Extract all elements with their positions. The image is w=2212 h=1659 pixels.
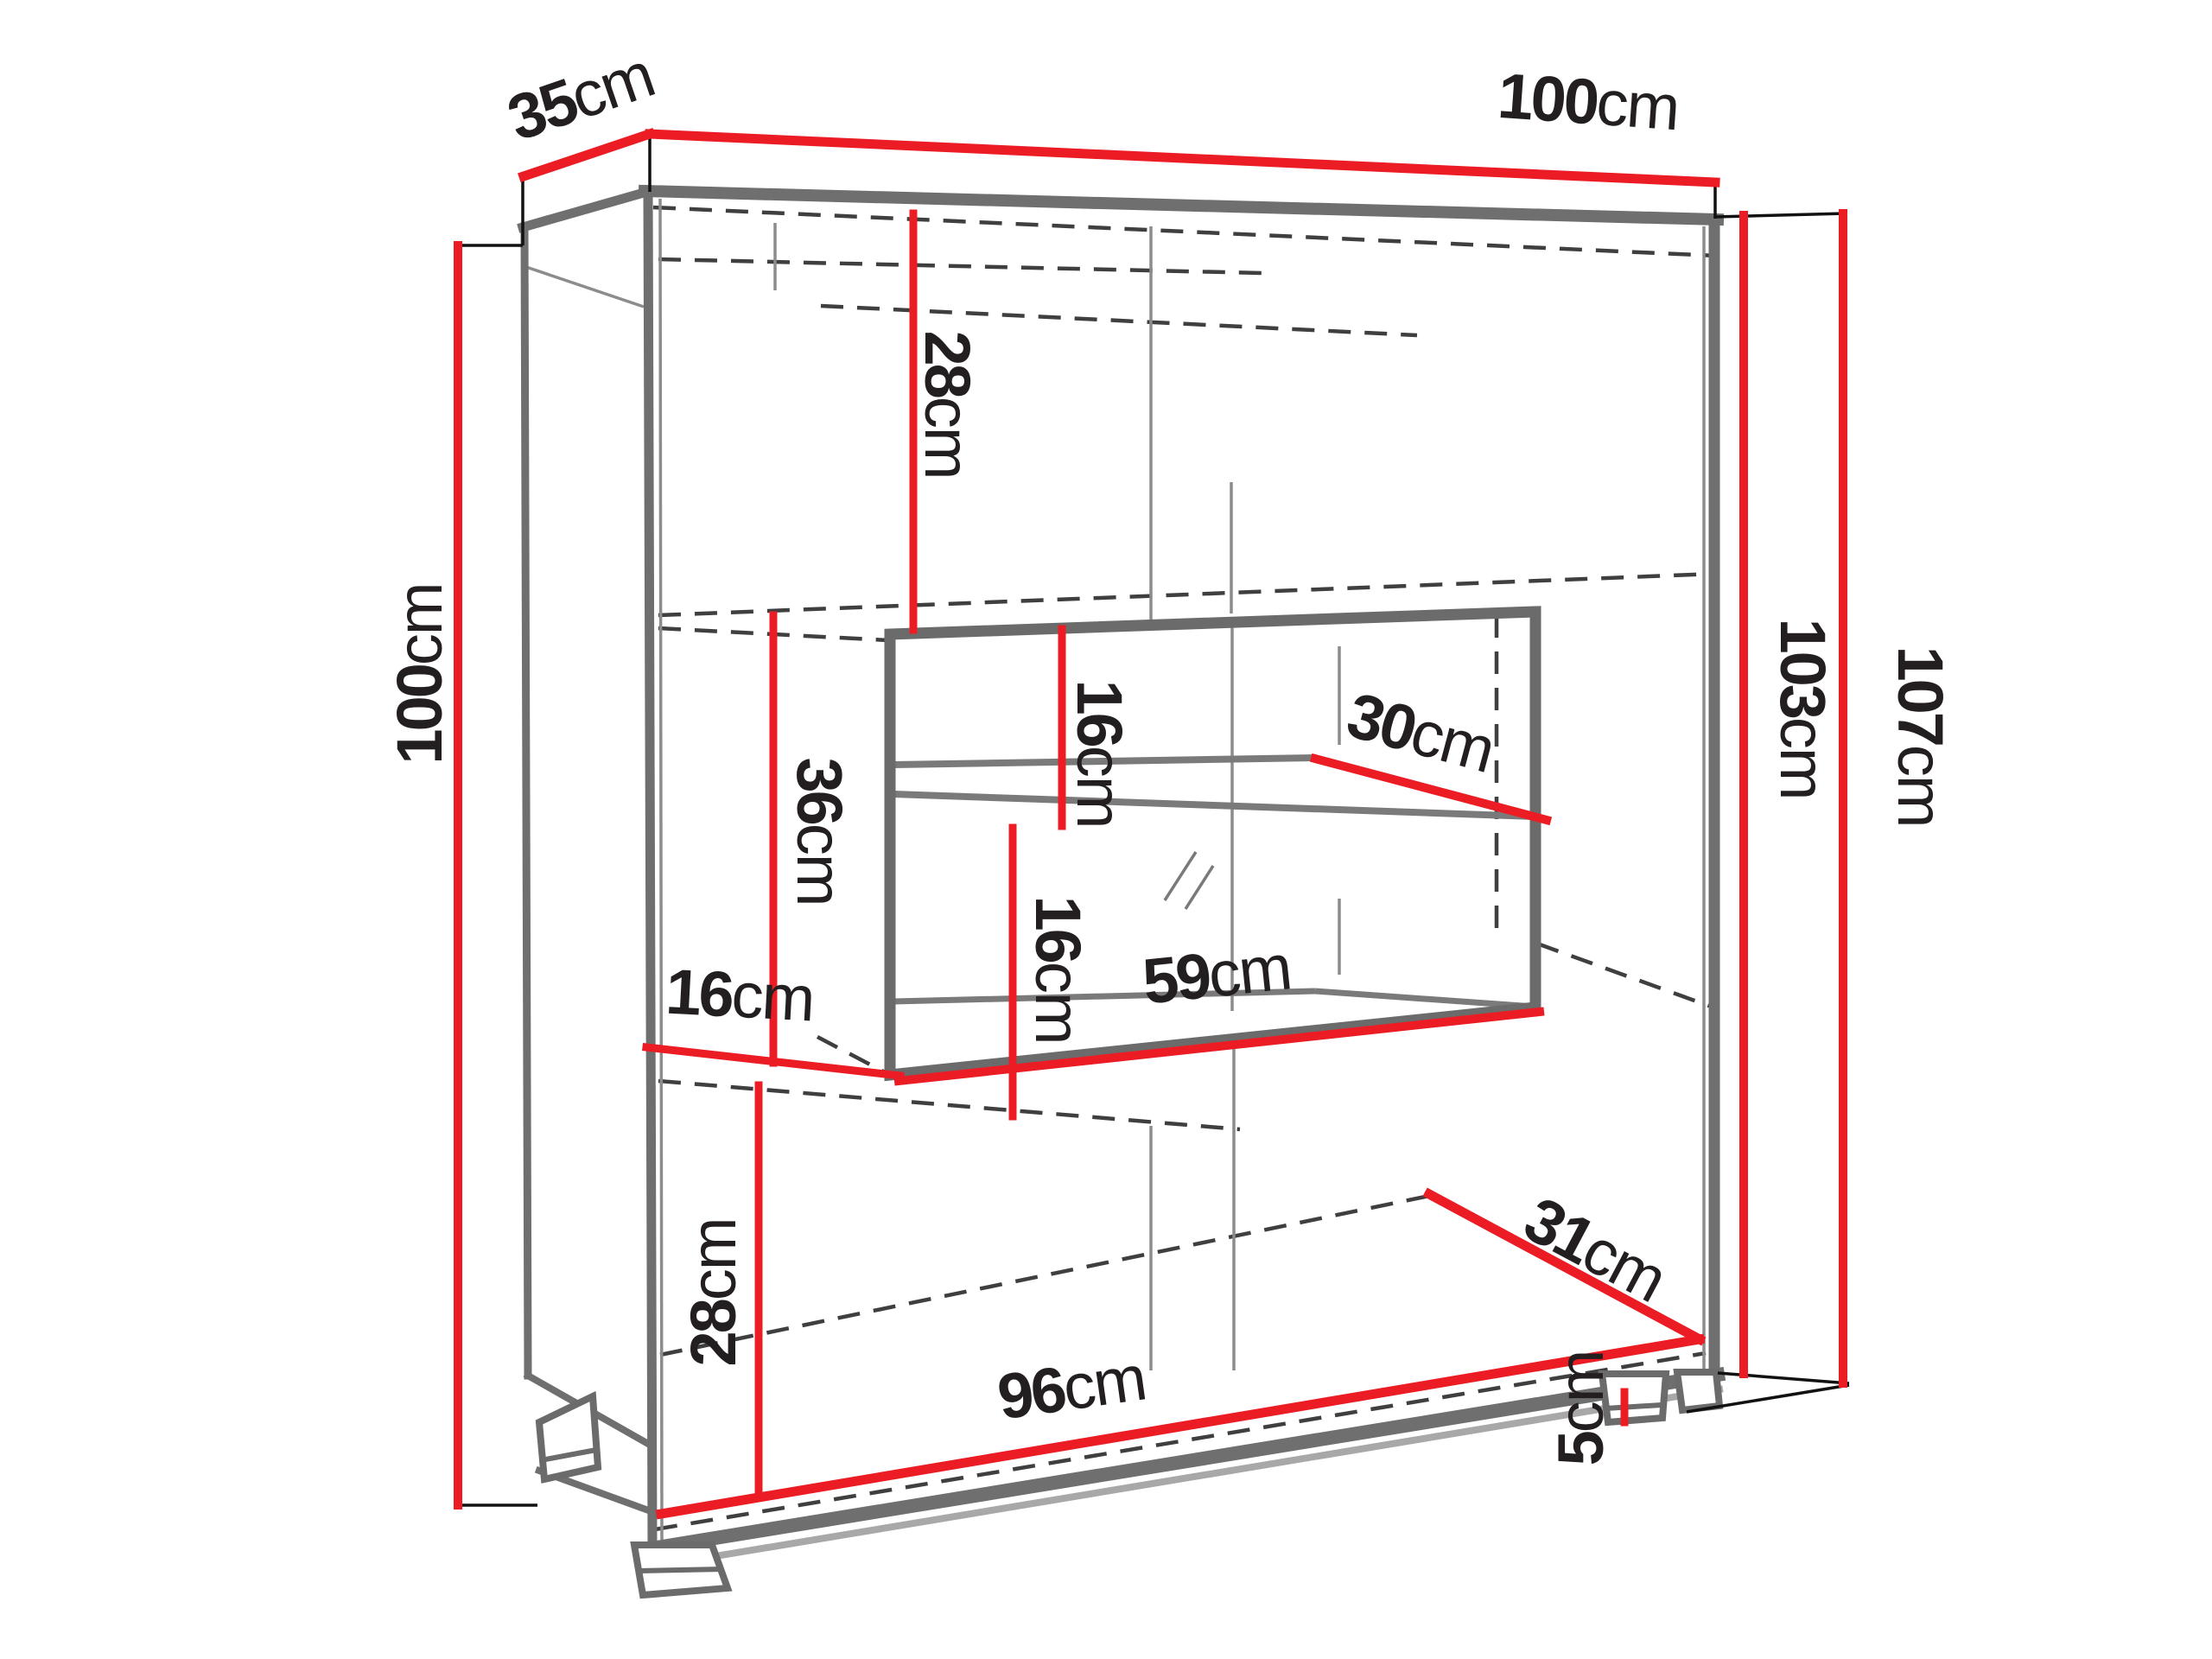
dimension-label-middle-compartment: 36cm [787, 758, 851, 906]
dimension-label-side-gap: 16cm [664, 960, 816, 1032]
dimension-unit: cm [1594, 67, 1681, 143]
dimension-value: 103 [1767, 618, 1839, 716]
dimension-value: 96 [994, 1353, 1069, 1433]
dimension-value: 36 [784, 758, 855, 823]
dimension-label-height-left: 100cm [388, 583, 452, 764]
dimension-label-niche-lower-gap: 16cm [1026, 896, 1090, 1044]
dim-line-width-top [650, 134, 1715, 182]
dimension-unit: cm [784, 823, 855, 906]
dimension-unit: cm [1885, 745, 1956, 827]
foot-back-left [539, 1396, 598, 1479]
dimension-label-foot-height: 5cm [1549, 1351, 1613, 1466]
dimension-label-niche-upper-gap: 16cm [1067, 680, 1131, 828]
dimension-value: 107 [1885, 645, 1956, 744]
dimension-label-total-height: 107cm [1888, 645, 1952, 826]
dimension-unit: cm [1205, 931, 1294, 1010]
foot-front-right [1677, 1372, 1719, 1410]
cabinet-side-panel [524, 190, 653, 1547]
dimension-value: 5 [1545, 1433, 1617, 1465]
dimension-unit: cm [912, 397, 983, 479]
furniture-dimension-diagram: 35cm 100cm 100cm 28cm 16cm 30cm 36cm 16c… [0, 0, 2212, 1659]
dimension-unit: cm [1058, 1342, 1149, 1424]
dimension-label-carcass-height: 103cm [1770, 618, 1834, 798]
dimension-unit: cm [677, 1219, 749, 1301]
dimension-unit: cm [1545, 1351, 1617, 1433]
dimension-value: 16 [664, 956, 734, 1031]
dimension-label-width-top: 100cm [1496, 64, 1681, 140]
dimension-value: 100 [1496, 60, 1599, 138]
dimension-unit: cm [1022, 962, 1094, 1044]
dimension-value: 16 [1064, 680, 1135, 746]
dimension-unit: cm [384, 583, 455, 665]
dimension-value: 59 [1140, 939, 1213, 1018]
dimension-value: 16 [1022, 896, 1094, 962]
dimension-value: 100 [384, 665, 455, 764]
dimension-unit: cm [1767, 717, 1839, 799]
dimension-label-bottom-compartment: 28cm [682, 1219, 746, 1367]
dimension-value: 28 [677, 1300, 749, 1366]
dimension-unit: cm [1064, 746, 1135, 828]
dimension-value: 28 [912, 331, 983, 397]
dimension-label-niche-width: 59cm [1140, 935, 1294, 1014]
dimension-label-upper-compartment: 28cm [915, 331, 979, 479]
dimension-unit: cm [730, 959, 816, 1035]
